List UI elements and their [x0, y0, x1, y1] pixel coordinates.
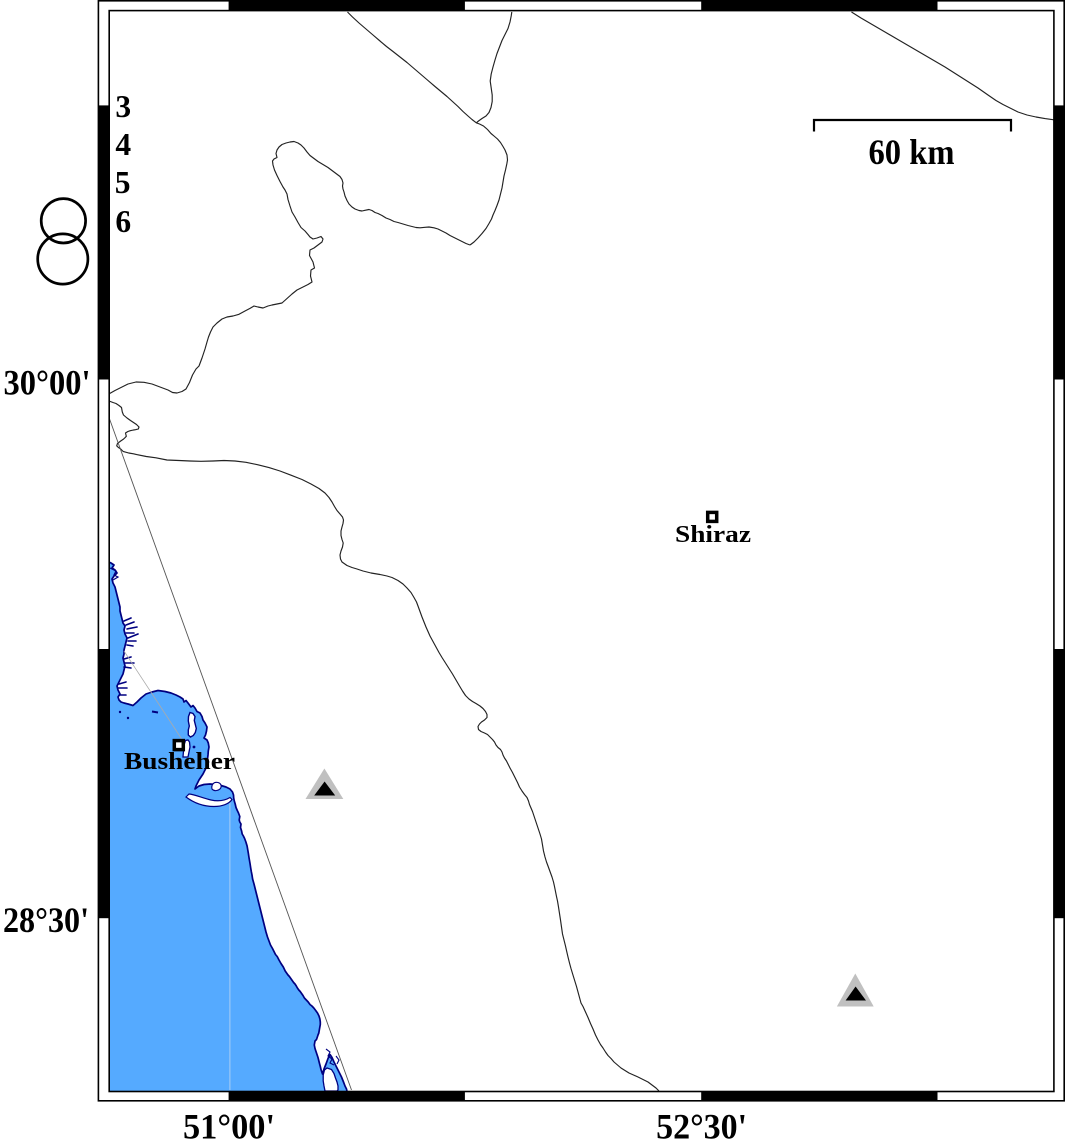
svg-text:Busheher: Busheher [124, 749, 235, 775]
svg-text:60 km: 60 km [869, 132, 955, 172]
svg-text:Shiraz: Shiraz [675, 522, 751, 548]
svg-text:52°30': 52°30' [656, 1106, 747, 1140]
svg-text:3: 3 [115, 89, 131, 124]
svg-text:4: 4 [115, 127, 131, 162]
svg-text:51°00': 51°00' [183, 1106, 275, 1140]
svg-text:6: 6 [115, 204, 131, 239]
svg-text:5: 5 [115, 165, 131, 200]
svg-text:28°30': 28°30' [3, 900, 89, 940]
svg-text:30°00': 30°00' [4, 363, 91, 403]
